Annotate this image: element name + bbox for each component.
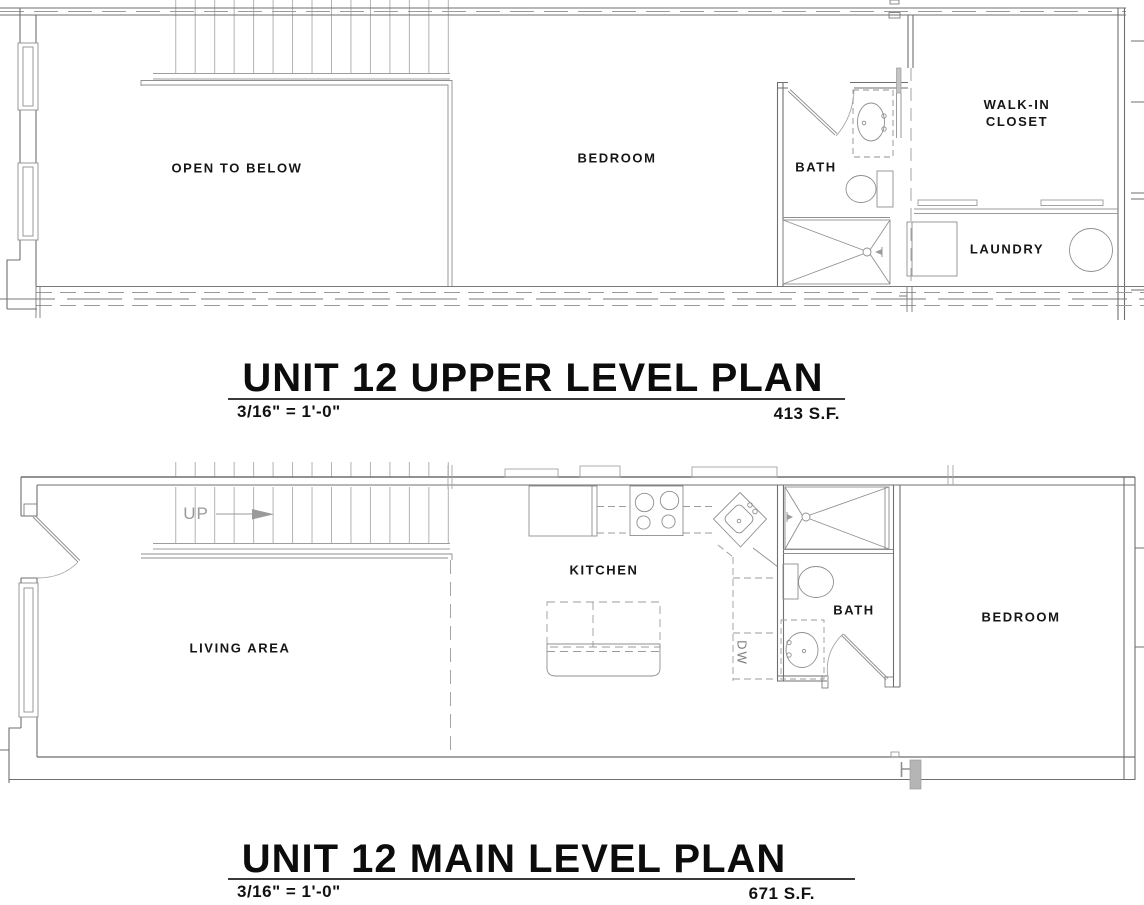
- room-label-living-area: LIVING AREA: [190, 641, 291, 656]
- main-toilet: [783, 564, 834, 599]
- upper-title-underline: [228, 398, 845, 400]
- window: [18, 43, 38, 240]
- floorplan-drawing: [0, 0, 1144, 905]
- entry-door: [33, 516, 80, 579]
- room-label-bath-main: BATH: [833, 603, 875, 618]
- corner-sink: [714, 493, 779, 568]
- main-bath-walls: [777, 485, 900, 688]
- upper-bath-door: [788, 90, 854, 137]
- main-left-wall: [0, 477, 38, 783]
- main-vanity-sink: [781, 620, 824, 679]
- floorplan-sheet: OPEN TO BELOW BEDROOM BATH WALK-IN CLOSE…: [0, 0, 1144, 905]
- upper-shower: [783, 218, 890, 285]
- upper-right-wall: [1118, 8, 1144, 320]
- closet-shelf-rod: [914, 200, 1118, 214]
- kitchen-counter-dashed: [597, 507, 777, 682]
- main-shower: [783, 487, 893, 554]
- washer: [907, 222, 957, 276]
- room-label-walk-in-closet: WALK-IN CLOSET: [962, 96, 1072, 130]
- main-title-underline: [228, 878, 855, 880]
- main-plan-scale: 3/16" = 1'-0": [237, 882, 341, 902]
- upper-plan-title: UNIT 12 UPPER LEVEL PLAN: [242, 356, 823, 401]
- room-label-open-to-below: OPEN TO BELOW: [171, 161, 302, 176]
- window: [19, 583, 38, 717]
- dishwasher-label: DW: [735, 640, 750, 666]
- main-plan-area: 671 S.F.: [690, 884, 815, 904]
- upper-bath-vanity-sink: [853, 90, 893, 157]
- room-label-bedroom-upper: BEDROOM: [577, 151, 656, 166]
- upper-toilet: [846, 171, 893, 207]
- upper-opening-edge: [141, 80, 452, 286]
- upper-stairs: [153, 0, 450, 79]
- stove: [630, 486, 683, 536]
- laundry-tub: [1070, 229, 1113, 272]
- kitchen-island: [547, 602, 660, 676]
- main-plan-drawing: [0, 462, 1144, 789]
- room-label-bedroom-main: BEDROOM: [981, 610, 1060, 625]
- stair-up-label: UP: [183, 504, 209, 524]
- upper-left-wall: [7, 8, 38, 309]
- main-bottom-wall: [9, 752, 1135, 789]
- room-label-laundry: LAUNDRY: [970, 242, 1044, 257]
- upper-plan-area: 413 S.F.: [710, 404, 840, 424]
- main-bath-door: [827, 634, 888, 680]
- refrigerator: [529, 486, 597, 536]
- room-label-kitchen: KITCHEN: [570, 563, 639, 578]
- room-label-bath-upper: BATH: [795, 160, 837, 175]
- main-right-wall: [1124, 477, 1144, 780]
- upper-plan-scale: 3/16" = 1'-0": [237, 402, 341, 422]
- main-plan-title: UNIT 12 MAIN LEVEL PLAN: [242, 837, 787, 882]
- upper-bottom-wall: [0, 286, 1144, 318]
